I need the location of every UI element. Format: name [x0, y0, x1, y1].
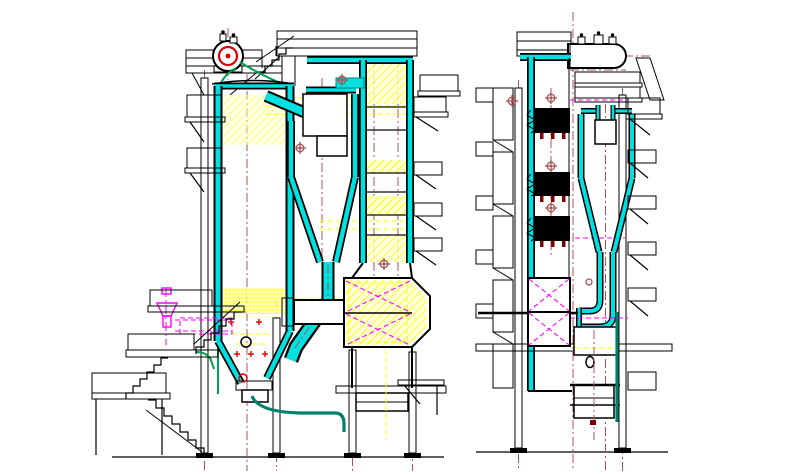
- tube-bank: [365, 107, 408, 130]
- air-heater: [282, 278, 446, 440]
- vortex-finder: [303, 94, 347, 136]
- drum-valve: [220, 34, 226, 41]
- grating-platform: [628, 372, 656, 390]
- end-elevation-view: [476, 12, 672, 471]
- air-duct: [294, 300, 344, 324]
- top-platform: [517, 32, 573, 56]
- vortex-finder: [595, 120, 616, 144]
- drawing-canvas: [0, 0, 791, 474]
- furnace-ash-discharge: [236, 374, 344, 432]
- side-elevation-view: [92, 28, 460, 471]
- tube-bank: [534, 216, 570, 241]
- tube-bank: [534, 108, 570, 133]
- steam-drum-end: [568, 31, 626, 68]
- tube-bank: [534, 172, 570, 196]
- ladder-tower: [476, 88, 513, 388]
- tube-bank: [365, 173, 408, 192]
- boiler-arrangement-drawing: [0, 0, 791, 474]
- tube-bank: [365, 215, 408, 235]
- lower-structure: [476, 278, 672, 440]
- drum-valve: [230, 37, 237, 43]
